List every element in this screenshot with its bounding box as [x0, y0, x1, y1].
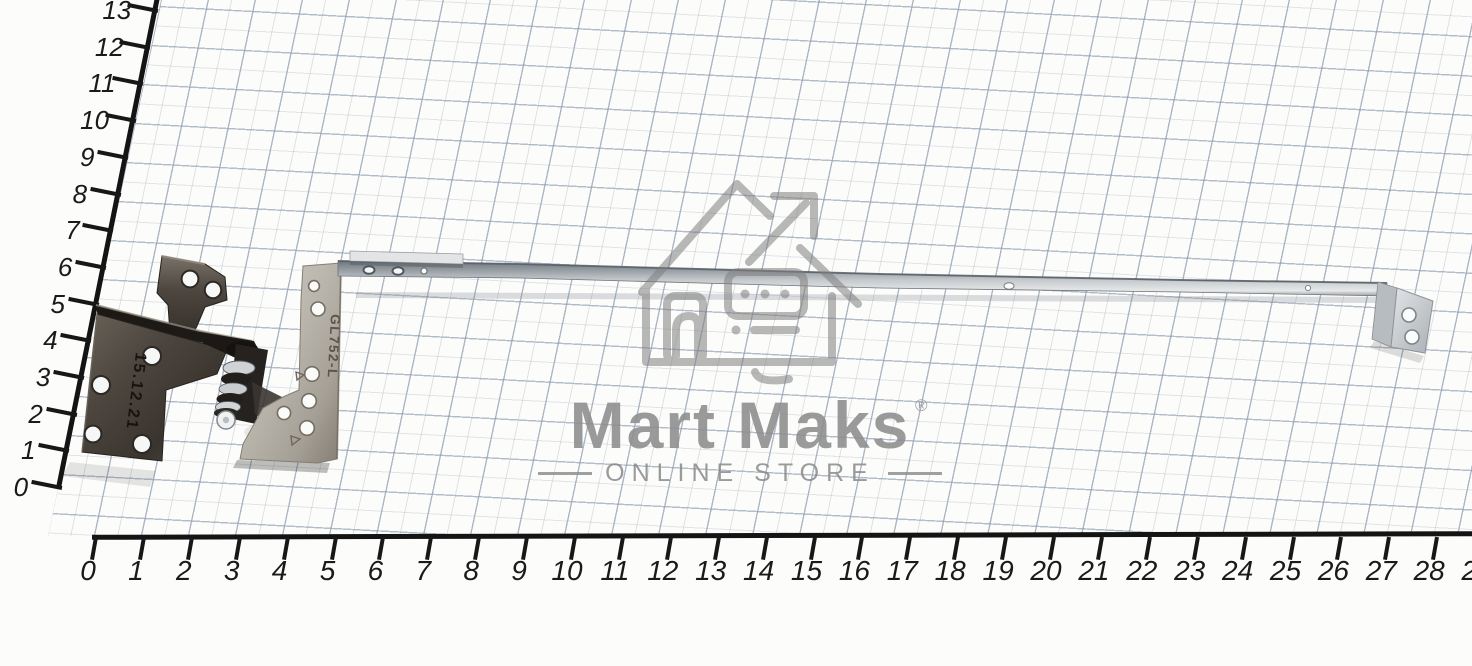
brand-name: Mart Maks — [538, 392, 942, 458]
screw-hole — [305, 367, 320, 382]
product-photo-canvas: 131211109876543210 012345678910111213141… — [0, 0, 1472, 666]
screw-hole — [302, 394, 317, 409]
house-with-arrow-store-icon — [628, 176, 864, 388]
screw-hole — [364, 266, 375, 274]
tagline-rule-right — [888, 472, 942, 475]
screw-hole — [1402, 308, 1416, 322]
screw-hole — [1305, 285, 1310, 290]
screw-hole — [133, 435, 151, 453]
screw-hole — [92, 376, 110, 394]
registered-mark: ® — [915, 396, 928, 416]
screw-hole — [311, 302, 325, 316]
tagline-rule-left — [538, 472, 592, 475]
screw-hole — [277, 406, 290, 419]
screw-hole — [300, 421, 315, 436]
tagline-row: ONLINE STORE — [538, 461, 942, 486]
screw-hole — [1405, 330, 1419, 344]
end-mount-bracket — [1370, 282, 1433, 363]
screw-hole — [1004, 283, 1014, 290]
screw-hole — [85, 426, 102, 443]
tagline: ONLINE STORE — [605, 461, 875, 486]
screw-hole — [182, 271, 199, 288]
screw-hole — [205, 282, 221, 298]
screw-hole — [309, 281, 320, 292]
screw-hole — [393, 267, 404, 275]
screw-hole — [421, 268, 427, 274]
